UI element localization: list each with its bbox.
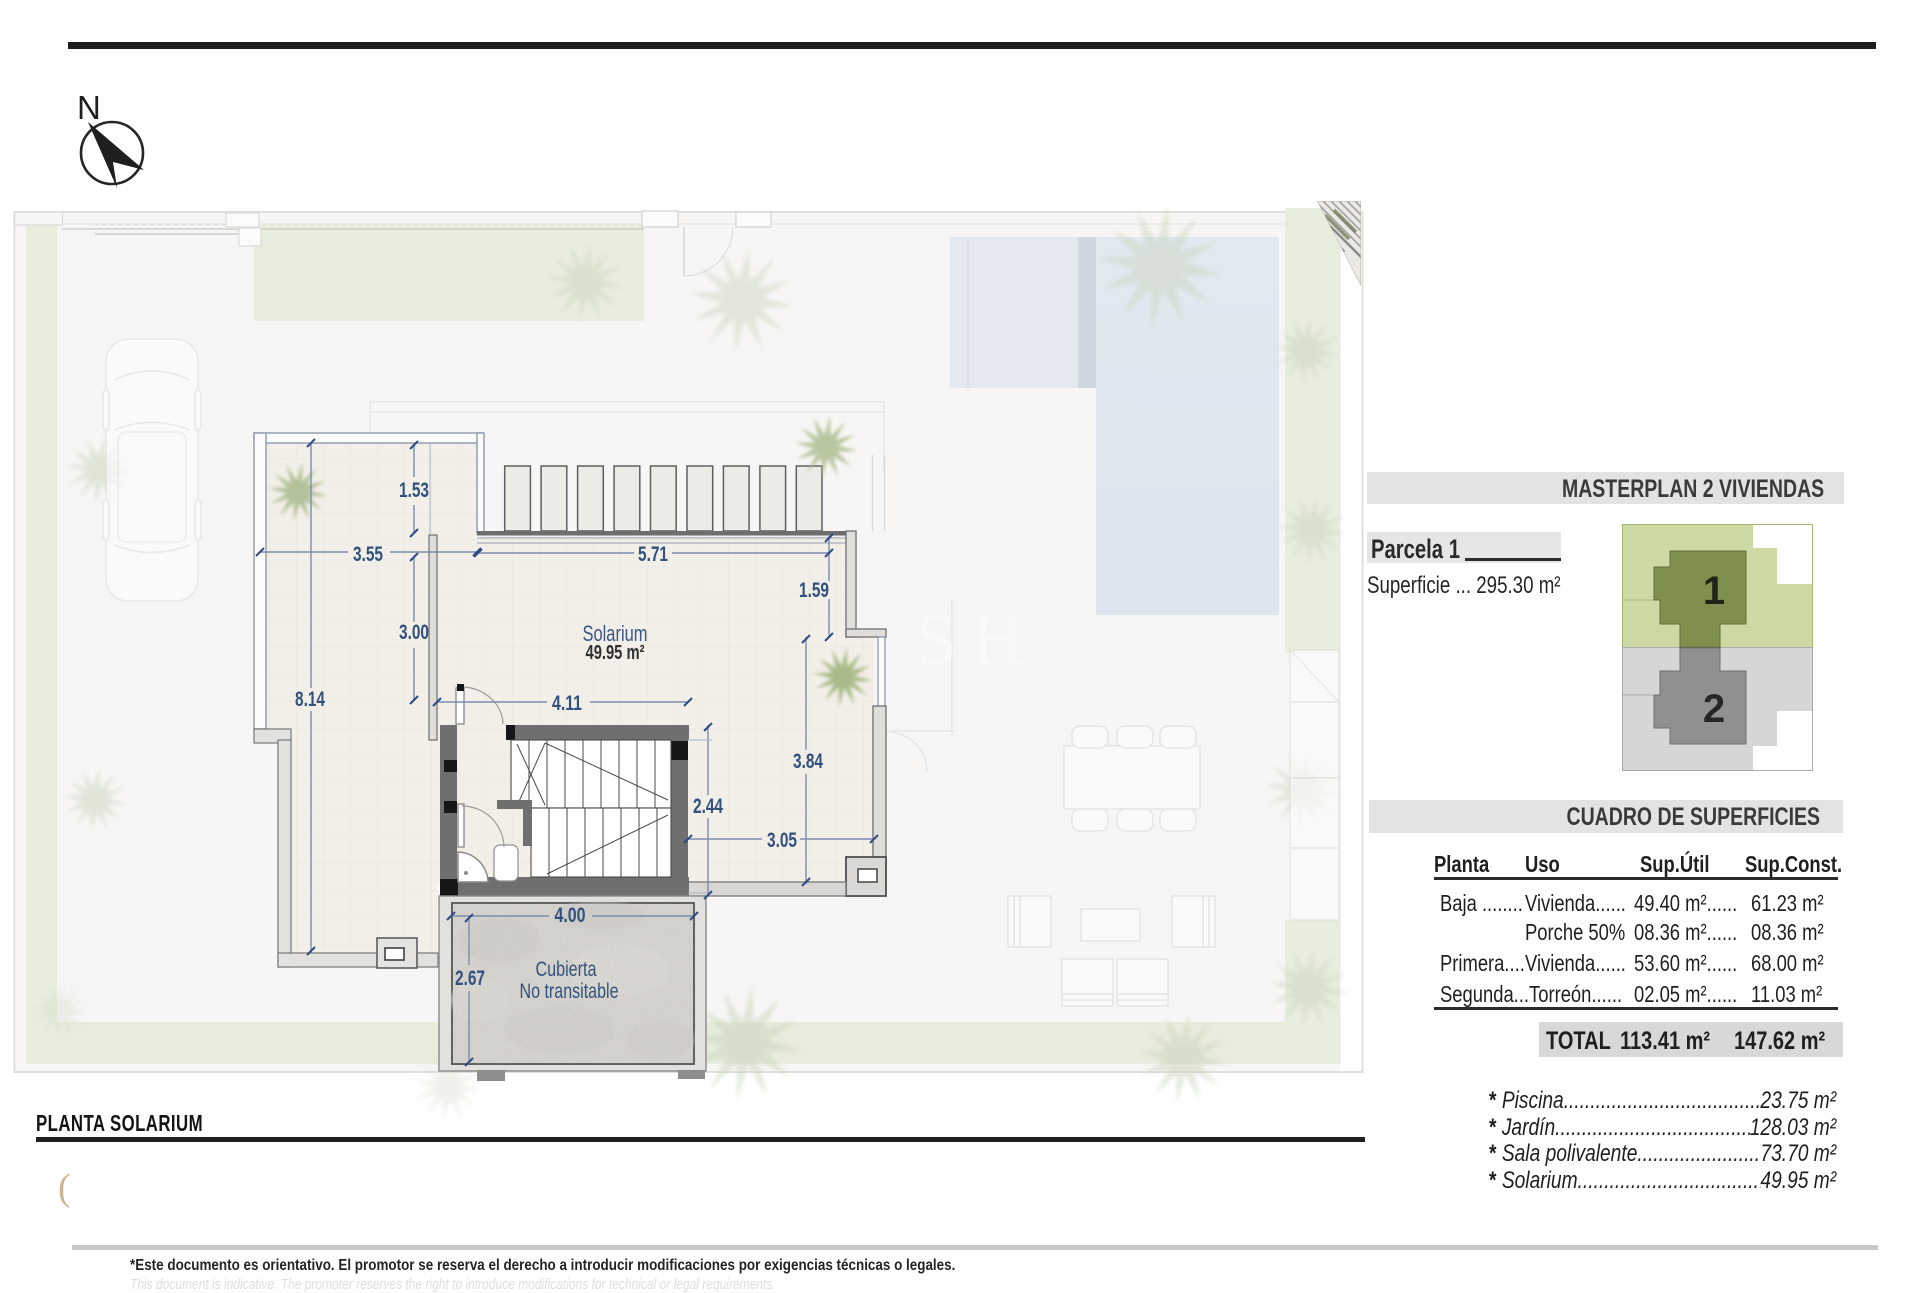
svg-text:8.14: 8.14: [295, 688, 325, 711]
svg-text:4.11: 4.11: [552, 692, 582, 715]
svg-text:2: 2: [1703, 687, 1725, 731]
svg-text:1.53: 1.53: [399, 479, 429, 502]
svg-text:1: 1: [1703, 569, 1725, 613]
svg-text:2.67: 2.67: [455, 967, 485, 990]
svg-text:49.95 m²: 49.95 m²: [586, 642, 645, 664]
svg-text:3.55: 3.55: [353, 543, 383, 566]
svg-text:4.00: 4.00: [555, 904, 586, 927]
svg-text:1.59: 1.59: [799, 579, 829, 602]
svg-text:No transitable: No transitable: [520, 980, 619, 1003]
svg-text:5.71: 5.71: [638, 543, 668, 566]
svg-text:Cubierta: Cubierta: [536, 958, 597, 981]
svg-text:2.44: 2.44: [693, 795, 723, 818]
svg-text:3.00: 3.00: [399, 621, 429, 644]
svg-text:N: N: [77, 89, 101, 126]
svg-text:3.84: 3.84: [793, 750, 823, 773]
svg-text:3.05: 3.05: [767, 829, 797, 852]
